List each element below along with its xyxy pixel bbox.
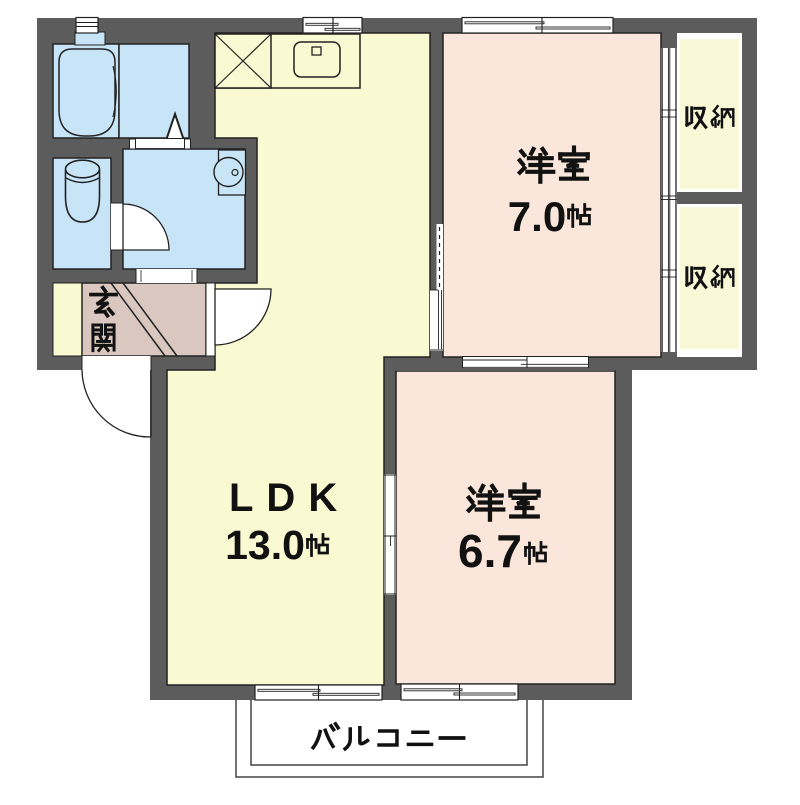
svg-text:LDK: LDK xyxy=(229,476,350,520)
svg-text:13.0: 13.0 xyxy=(225,522,305,568)
svg-text:7.0: 7.0 xyxy=(508,193,566,240)
svg-text:6.7: 6.7 xyxy=(458,525,522,577)
